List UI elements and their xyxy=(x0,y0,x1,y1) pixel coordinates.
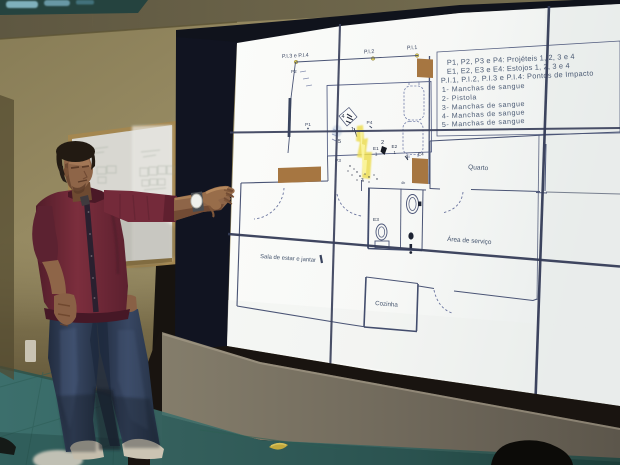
svg-text:1: 1 xyxy=(351,127,354,133)
svg-text:E3: E3 xyxy=(373,217,379,223)
svg-text:E2: E2 xyxy=(392,144,398,149)
svg-text:E4: E4 xyxy=(418,152,424,157)
svg-text:4b: 4b xyxy=(401,181,405,185)
svg-text:P.I.2: P.I.2 xyxy=(364,49,375,56)
svg-text:Quarto: Quarto xyxy=(468,164,489,172)
svg-text:P.I.1: P.I.1 xyxy=(407,45,418,52)
svg-text:2: 2 xyxy=(381,140,384,146)
svg-text:2- Pistola: 2- Pistola xyxy=(442,93,477,103)
svg-text:4: 4 xyxy=(342,114,345,120)
svg-text:P4: P4 xyxy=(367,120,373,126)
svg-text:P2: P2 xyxy=(291,69,297,74)
svg-text:P1: P1 xyxy=(305,122,311,128)
svg-text:5: 5 xyxy=(338,139,341,145)
svg-text:E1: E1 xyxy=(373,146,379,151)
